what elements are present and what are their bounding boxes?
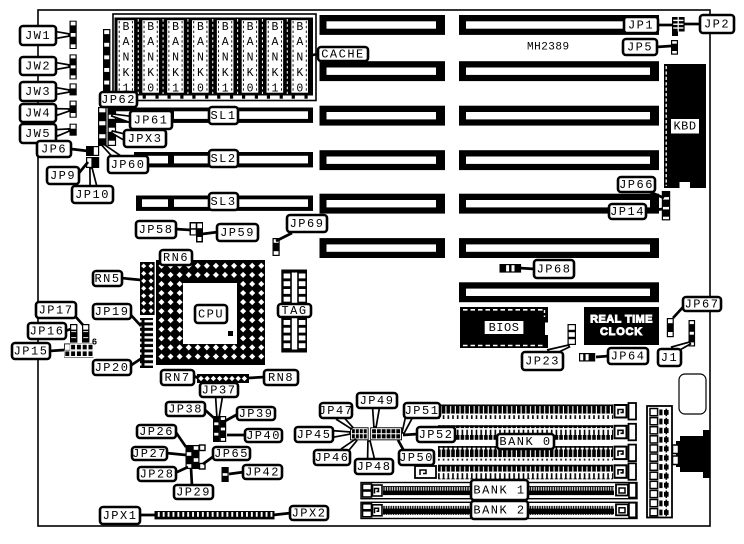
svg-text:A: A [122,36,129,49]
svg-text:JP19: JP19 [95,305,130,319]
svg-text:RN7: RN7 [164,371,190,385]
svg-text:BIOS: BIOS [489,321,520,335]
svg-text:JP17: JP17 [39,304,74,318]
svg-text:JP69: JP69 [290,217,325,231]
svg-text:BANK 2: BANK 2 [473,504,525,518]
svg-text:A: A [147,36,154,49]
svg-text:JW1: JW1 [25,29,51,43]
svg-text:JP50: JP50 [399,451,434,465]
svg-text:A: A [222,36,229,49]
svg-text:B: B [197,21,204,34]
svg-text:BANK 1: BANK 1 [473,484,525,498]
svg-text:K: K [172,67,179,80]
svg-text:B: B [247,21,254,34]
svg-text:JP42: JP42 [245,466,280,480]
svg-text:1: 1 [271,82,278,95]
svg-text:1: 1 [222,82,229,95]
svg-text:JP15: JP15 [14,345,49,359]
svg-text:JP10: JP10 [75,188,110,202]
svg-text:N: N [197,52,204,65]
svg-text:JW2: JW2 [25,60,51,74]
svg-text:K: K [247,67,254,80]
svg-text:REAL TIME: REAL TIME [590,314,653,326]
svg-text:JP38: JP38 [168,403,203,417]
svg-text:JP26: JP26 [139,425,174,439]
svg-text:N: N [222,52,229,65]
svg-text:N: N [271,52,278,65]
svg-text:JP14: JP14 [610,205,645,219]
svg-text:JP62: JP62 [101,93,136,107]
svg-text:JP49: JP49 [360,394,395,408]
svg-text:B: B [222,21,229,34]
svg-text:JP45: JP45 [297,428,332,442]
svg-text:1: 1 [172,82,179,95]
svg-text:JP51: JP51 [405,404,440,418]
svg-text:JW3: JW3 [25,85,51,99]
svg-text:N: N [247,52,254,65]
svg-text:0: 0 [247,82,254,95]
svg-text:A: A [271,36,278,49]
svg-text:0: 0 [197,82,204,95]
svg-text:B: B [122,21,129,34]
svg-text:CACHE: CACHE [321,48,365,62]
svg-text:N: N [147,52,154,65]
svg-text:JW5: JW5 [25,127,51,141]
svg-text:N: N [172,52,179,65]
svg-text:JP66: JP66 [619,178,654,192]
svg-text:JP48: JP48 [357,460,392,474]
svg-text:CPU: CPU [198,308,224,322]
svg-text:K: K [197,67,204,80]
svg-text:JP58: JP58 [139,223,174,237]
svg-text:JPX1: JPX1 [103,509,138,523]
svg-text:TAG: TAG [281,304,307,318]
svg-text:JPX3: JPX3 [128,132,163,146]
svg-text:JP2: JP2 [704,18,730,32]
svg-text:SL2: SL2 [210,152,236,166]
svg-text:B: B [147,21,154,34]
svg-text:K: K [122,67,129,80]
svg-text:JP61: JP61 [134,114,169,128]
svg-text:A: A [296,36,303,49]
svg-text:JP5: JP5 [627,41,653,55]
svg-text:K: K [296,67,303,80]
svg-text:JPX2: JPX2 [292,507,327,521]
svg-text:JP9: JP9 [50,169,76,183]
svg-text:JP65: JP65 [214,447,249,461]
svg-text:N: N [296,52,303,65]
svg-text:JP60: JP60 [111,158,146,172]
svg-text:JP64: JP64 [611,350,646,364]
svg-text:K: K [271,67,278,80]
svg-text:A: A [247,36,254,49]
svg-text:JP29: JP29 [176,486,211,500]
svg-text:SL3: SL3 [210,195,236,209]
svg-text:RN6: RN6 [163,251,189,265]
svg-text:JP40: JP40 [246,429,281,443]
svg-text:JP28: JP28 [140,468,175,482]
svg-text:K: K [147,67,154,80]
svg-text:RN5: RN5 [94,272,120,286]
svg-text:JP67: JP67 [685,298,720,312]
svg-text:K: K [222,67,229,80]
svg-text:JP68: JP68 [537,263,572,277]
svg-text:JP27: JP27 [132,447,167,461]
svg-text:RN8: RN8 [268,371,294,385]
svg-text:CLOCK: CLOCK [600,326,643,338]
svg-text:B: B [296,21,303,34]
svg-text:MH2389: MH2389 [527,42,570,54]
svg-text:JP6: JP6 [41,143,67,157]
svg-text:6: 6 [92,338,97,348]
svg-text:JP52: JP52 [419,428,454,442]
svg-text:JP20: JP20 [95,361,130,375]
svg-text:JP46: JP46 [315,451,350,465]
svg-text:KBD: KBD [673,120,696,134]
svg-text:JP16: JP16 [30,325,65,339]
svg-text:B: B [172,21,179,34]
svg-text:JP37: JP37 [202,384,237,398]
svg-text:0: 0 [296,82,303,95]
svg-text:N: N [122,52,129,65]
svg-text:JP59: JP59 [220,226,255,240]
svg-text:SL1: SL1 [210,109,236,123]
svg-text:0: 0 [147,82,154,95]
svg-text:B: B [271,21,278,34]
svg-text:JP47: JP47 [319,404,354,418]
svg-text:JW4: JW4 [25,107,51,121]
svg-text:JP1: JP1 [628,19,654,33]
svg-text:A: A [172,36,179,49]
svg-text:J1: J1 [661,351,678,365]
svg-text:BANK 0: BANK 0 [499,435,551,449]
svg-text:JP39: JP39 [239,407,274,421]
svg-text:A: A [197,36,204,49]
svg-text:JP23: JP23 [525,355,560,369]
